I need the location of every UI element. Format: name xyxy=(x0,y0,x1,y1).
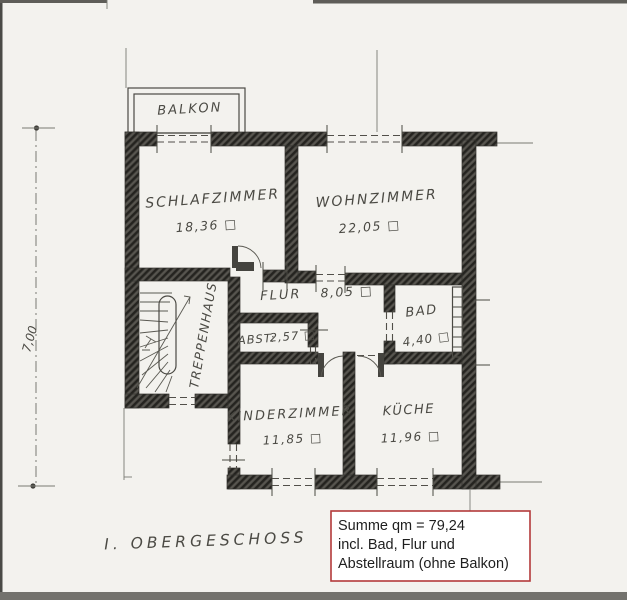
summary-line-2: incl. Bad, Flur und xyxy=(338,537,455,553)
bathroom-door xyxy=(387,312,393,341)
scan-left-edge xyxy=(0,0,3,600)
room-label-schlafzimmer: SCHLAFZIMMER xyxy=(145,186,281,211)
scan-bottom-band xyxy=(0,592,627,600)
room-area-kueche: 11,96 □ xyxy=(380,428,441,445)
kitchen-window xyxy=(377,479,433,486)
scan-top-edge-left xyxy=(0,0,107,3)
kidsroom-side-window xyxy=(230,444,237,468)
balcony-door-window xyxy=(157,136,211,143)
dimension-line-left: 7,00 xyxy=(18,125,55,488)
scan-edge-artifacts xyxy=(0,0,627,600)
livingroom-door xyxy=(316,275,345,282)
room-area-bad: 4,40 □ xyxy=(402,329,451,350)
room-area-schlafzimmer: 18,36 □ xyxy=(175,216,238,235)
floor-plan-drawing: 7,00 xyxy=(0,0,627,600)
bedroom-door xyxy=(232,246,261,271)
summary-line-1: Summe qm = 79,24 xyxy=(338,518,465,534)
room-label-flur: FLUR xyxy=(260,287,302,304)
staircase xyxy=(137,293,190,392)
floor-title: I. OBERGESCHOSS xyxy=(104,528,308,553)
room-label-treppenhaus: TREPPENHAUS xyxy=(186,280,220,389)
room-label-wohnzimmer: WOHNZIMMER xyxy=(315,187,438,211)
room-area-wohnzimmer: 22,05 □ xyxy=(338,217,401,236)
livingroom-window xyxy=(327,136,402,143)
summary-line-3: Abstellraum (ohne Balkon) xyxy=(338,556,509,572)
scan-top-edge-right xyxy=(313,0,627,4)
room-area-flur: 8,05 □ xyxy=(320,283,373,301)
dimension-label: 7,00 xyxy=(19,324,40,354)
room-label-kueche: KÜCHE xyxy=(382,400,435,420)
room-label-kinderzimmer: KINDERZIMMER xyxy=(227,404,353,426)
kidsroom-window xyxy=(272,479,315,486)
room-area-kinderzimmer: 11,85 □ xyxy=(262,430,323,447)
stairwell-opening xyxy=(169,398,195,405)
room-label-balkon: BALKON xyxy=(157,100,223,118)
kitchen-door xyxy=(357,353,384,377)
summary-box: Summe qm = 79,24 incl. Bad, Flur und Abs… xyxy=(331,511,530,581)
kidsroom-door xyxy=(318,353,343,377)
room-label-bad: BAD xyxy=(405,302,439,320)
